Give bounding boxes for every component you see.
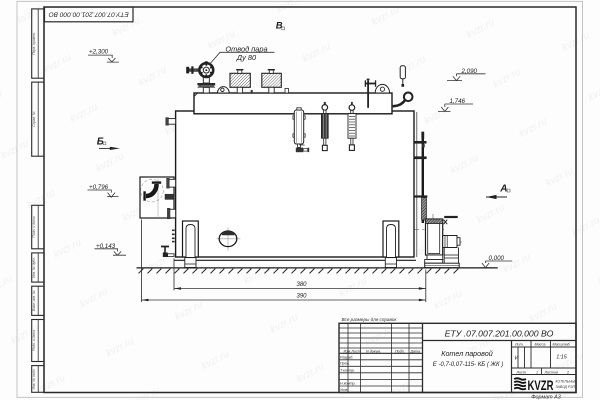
svg-text:KVZR: KVZR (528, 377, 554, 393)
svg-text:Т.контр.: Т.контр. (340, 369, 355, 373)
svg-text:+0,143: +0,143 (96, 243, 116, 250)
svg-text:ЕТУ .07.007.201.00.000 ВО: ЕТУ .07.007.201.00.000 ВО (445, 329, 554, 339)
svg-text:Н.контр.: Н.контр. (340, 382, 356, 386)
svg-text:Утв.: Утв. (340, 388, 348, 392)
svg-text:Дата: Дата (410, 349, 421, 353)
svg-text:Изм.Лист: Изм.Лист (344, 349, 361, 353)
svg-text:+0,796: +0,796 (89, 184, 109, 191)
svg-text:1:15: 1:15 (556, 355, 567, 361)
svg-text:Разраб.: Разраб. (340, 356, 353, 360)
svg-text:Котел паровой: Котел паровой (441, 349, 493, 358)
svg-text:Все размеры для справок: Все размеры для справок (341, 317, 397, 322)
svg-text:Подп. и дата: Подп. и дата (32, 330, 36, 351)
svg-text:Б: Б (97, 136, 104, 147)
svg-text:Инв. № дубл.: Инв. № дубл. (32, 257, 36, 278)
svg-text:Инв. № подл.: Инв. № подл. (32, 368, 36, 389)
svg-text:390: 390 (296, 294, 307, 300)
svg-text:КОТЕЛЬНЫЙ: КОТЕЛЬНЫЙ (556, 380, 578, 384)
svg-text:Листов: Листов (544, 370, 559, 374)
svg-text:Взам. инв. №: Взам. инв. № (32, 290, 36, 311)
svg-text:1: 1 (536, 370, 538, 374)
svg-text:И: И (515, 356, 519, 362)
svg-text:380: 380 (296, 282, 307, 288)
svg-text:1,746: 1,746 (450, 98, 466, 105)
svg-text:Подп.: Подп. (395, 349, 405, 353)
svg-text:Справ. №: Справ. № (32, 111, 36, 127)
svg-text:Пров.: Пров. (340, 362, 350, 366)
svg-text:Лист: Лист (516, 370, 527, 374)
svg-text:А: А (499, 183, 507, 194)
svg-text:2: 2 (566, 370, 569, 374)
svg-text:Масштаб: Масштаб (553, 342, 571, 346)
svg-text:+2,300: +2,300 (89, 49, 109, 56)
svg-text:Лит.: Лит. (514, 342, 524, 346)
svg-text:N докум.: N докум. (366, 349, 381, 353)
svg-text:Масса: Масса (535, 342, 546, 346)
svg-text:ЗАВОД РЭП: ЗАВОД РЭП (556, 385, 576, 389)
svg-text:Подп. и дата: Подп. и дата (32, 216, 36, 237)
svg-text:Формат А3: Формат А3 (531, 394, 561, 400)
svg-text:0,000: 0,000 (489, 255, 505, 262)
svg-text:Перв. примен.: Перв. примен. (32, 32, 36, 55)
svg-text:Е -0,7-0,07-115- КБ ( ЖК ): Е -0,7-0,07-115- КБ ( ЖК ) (433, 362, 503, 368)
svg-text:Ду 80: Ду 80 (236, 53, 257, 62)
svg-text:ЕТУ.07.007.201.00.000 ВО: ЕТУ.07.007.201.00.000 ВО (49, 11, 129, 18)
svg-text:2,090: 2,090 (461, 68, 478, 75)
